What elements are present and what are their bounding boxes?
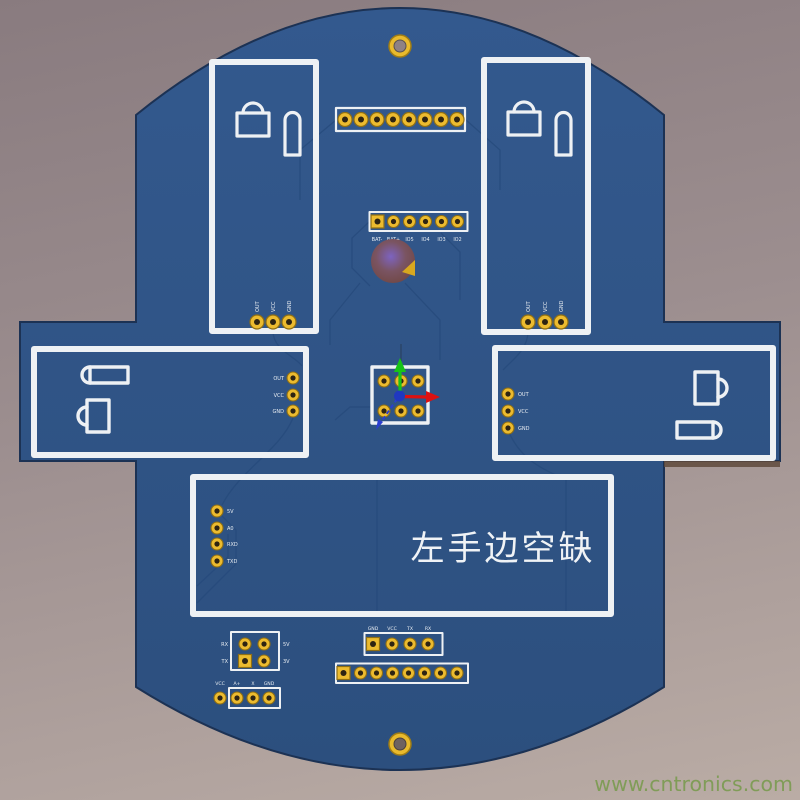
pad <box>387 667 399 679</box>
pad <box>258 655 270 667</box>
pad <box>412 375 424 387</box>
pin-label: RX <box>221 642 228 648</box>
pad <box>395 405 407 417</box>
pin-label: TX <box>406 626 413 632</box>
pin-label: GND <box>264 681 275 687</box>
buzzer-component <box>371 239 415 283</box>
pad <box>435 667 447 679</box>
pad <box>211 555 223 567</box>
pad <box>554 315 568 329</box>
pin-label: OUT <box>255 300 261 312</box>
pin-label: GND <box>518 426 530 432</box>
pin-label: GND <box>273 409 285 415</box>
pad <box>266 315 280 329</box>
axis-x-red <box>402 397 427 398</box>
pad <box>371 215 384 228</box>
pad <box>386 113 400 127</box>
pin-label: BAT- <box>372 237 383 243</box>
pin-label: IO2 <box>453 237 461 243</box>
pad <box>239 638 251 650</box>
pin-label: VCC <box>215 681 225 687</box>
pad <box>412 405 424 417</box>
pad <box>355 667 367 679</box>
pin-label: X <box>251 681 254 687</box>
pad <box>502 388 514 400</box>
pad <box>418 113 432 127</box>
pin-label: VCC <box>271 301 277 312</box>
pad <box>538 315 552 329</box>
pin-label: GND <box>287 300 293 312</box>
pad <box>211 522 223 534</box>
pad <box>434 113 448 127</box>
pin-label: GND <box>368 626 379 632</box>
pad <box>450 113 464 127</box>
board-annotation: 左手边空缺 <box>411 529 596 569</box>
pad <box>419 667 431 679</box>
pad <box>404 638 416 650</box>
pin-label: OUT <box>273 376 285 382</box>
pad <box>338 113 352 127</box>
pad <box>211 505 223 517</box>
watermark: www.cntronics.com <box>594 772 793 796</box>
pad <box>211 538 223 550</box>
mounting-hole-bottom <box>389 733 411 755</box>
board-edge-shadow <box>664 461 780 467</box>
pcb-viewport: BAT- BAT+ IO5 IO4 IO3 IO2 OUT VCC GND <box>0 0 800 800</box>
pad <box>287 372 299 384</box>
pin-label: VCC <box>543 301 549 312</box>
pad <box>436 216 448 228</box>
pad <box>452 216 464 228</box>
pin-label: 3V <box>283 659 290 665</box>
pad <box>502 422 514 434</box>
pin-label: OUT <box>526 300 532 312</box>
pin-label: VCC <box>387 626 397 632</box>
pad <box>451 667 463 679</box>
pad <box>337 667 350 680</box>
pin-label: IO3 <box>437 237 445 243</box>
pad <box>250 315 264 329</box>
pin-label: A+ <box>234 681 241 687</box>
pin-label: OUT <box>518 392 530 398</box>
pad <box>404 216 416 228</box>
axis-origin-sphere <box>394 391 405 402</box>
pad <box>231 692 243 704</box>
pin-label: VCC <box>274 393 285 399</box>
pad <box>403 667 415 679</box>
pad <box>263 692 275 704</box>
pad <box>386 638 398 650</box>
pin-label: A0 <box>227 526 234 532</box>
pad <box>367 638 380 651</box>
pad <box>402 113 416 127</box>
pin-label: 5V <box>227 509 234 515</box>
pad <box>282 315 296 329</box>
pcb-3d-render: BAT- BAT+ IO5 IO4 IO3 IO2 OUT VCC GND <box>0 0 800 800</box>
pad <box>214 692 226 704</box>
pad <box>258 638 270 650</box>
pin-label: VCC <box>518 409 529 415</box>
pin-label: IO5 <box>405 237 413 243</box>
pad <box>420 216 432 228</box>
pad <box>370 113 384 127</box>
pad <box>521 315 535 329</box>
pin-label: RXD <box>227 542 238 548</box>
pin-label: RX <box>425 626 431 632</box>
pin-label: GND <box>559 300 565 312</box>
pad <box>502 405 514 417</box>
pad <box>239 655 252 668</box>
mounting-hole-top <box>389 35 411 57</box>
pad <box>354 113 368 127</box>
pin-label: TXD <box>226 559 237 565</box>
pin-label: TX <box>221 659 229 665</box>
pad <box>287 389 299 401</box>
pad <box>287 405 299 417</box>
pad <box>378 375 390 387</box>
pin-label: 5V <box>283 642 290 648</box>
pad <box>371 667 383 679</box>
pad <box>247 692 259 704</box>
pad <box>422 638 434 650</box>
pin-label: IO4 <box>421 237 429 243</box>
pad <box>388 216 400 228</box>
